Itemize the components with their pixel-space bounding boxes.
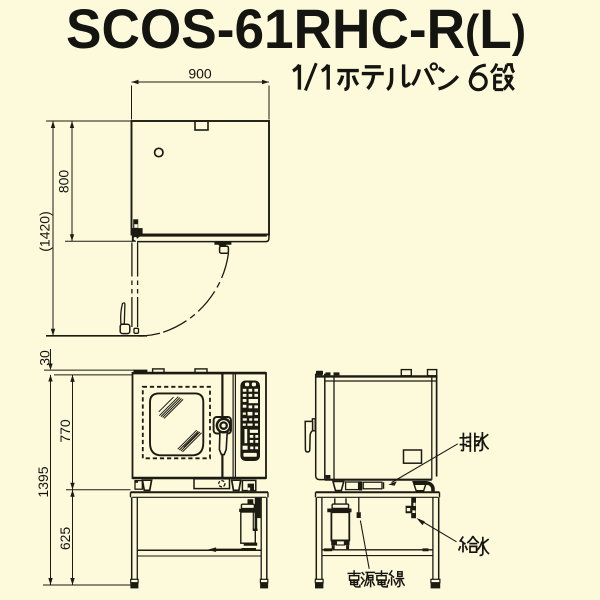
svg-text:625: 625 (57, 527, 73, 551)
svg-text:800: 800 (56, 170, 72, 194)
svg-text:SCOS-61RHC-R(L): SCOS-61RHC-R(L) (66, 0, 526, 60)
svg-text:30: 30 (37, 350, 53, 366)
svg-text:1395: 1395 (35, 466, 51, 497)
svg-text:(1420): (1420) (37, 211, 53, 251)
svg-text:900: 900 (188, 66, 212, 82)
svg-text:770: 770 (57, 419, 73, 443)
